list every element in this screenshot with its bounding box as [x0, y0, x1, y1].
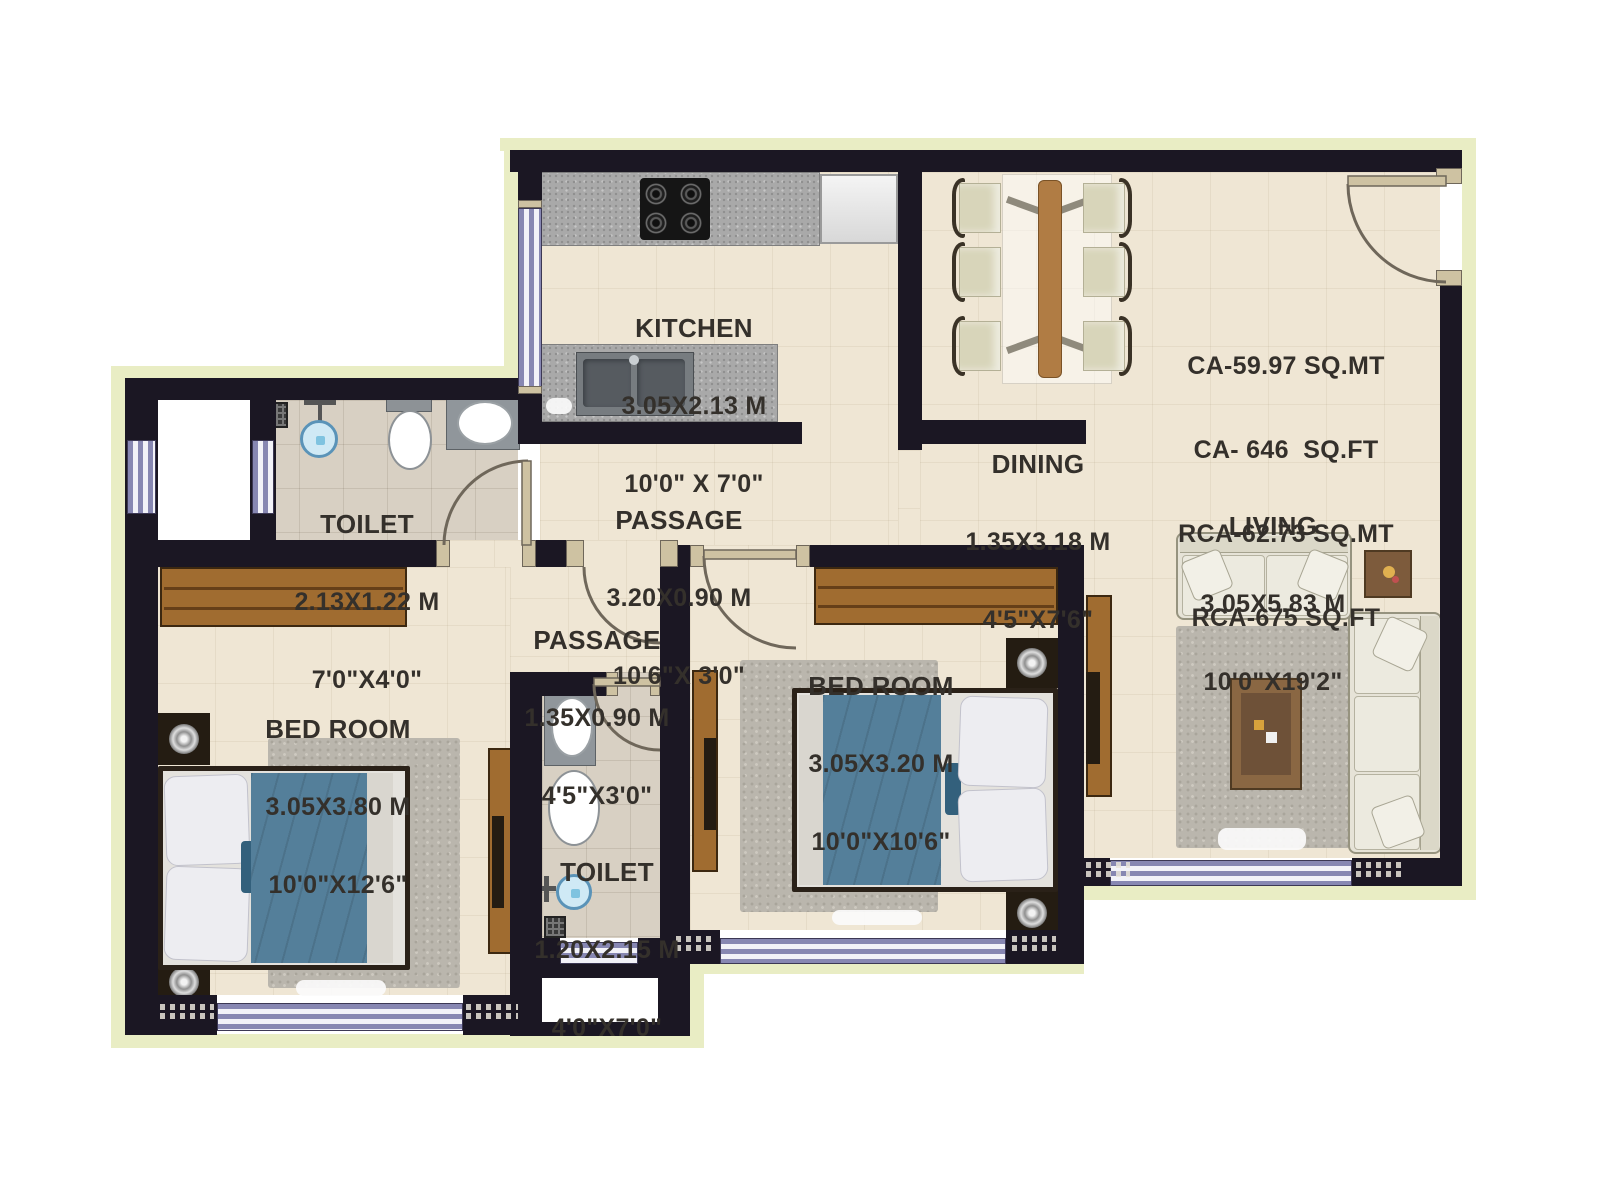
room-size-metric: 2.13X1.22 M	[294, 589, 439, 615]
wall-hatch	[1086, 871, 1130, 877]
room-size-imperial: 4'0"X7'0"	[534, 1015, 679, 1041]
plan-outline	[111, 366, 125, 1048]
room-name: LIVING	[1200, 513, 1345, 539]
door-jamb	[796, 545, 810, 567]
room-size-metric: 3.05X3.80 M	[265, 794, 410, 820]
dining-chair	[1080, 180, 1128, 236]
room-size-metric: 3.05X2.13 M	[621, 393, 766, 419]
wall	[125, 378, 518, 400]
dining-table-plank	[1038, 180, 1062, 378]
dining-chair	[956, 318, 1004, 374]
window	[720, 938, 1006, 964]
doormat	[296, 980, 386, 996]
door-jamb	[1436, 168, 1462, 184]
toilet-top-door-leaf	[522, 461, 531, 545]
dining-chair	[956, 180, 1004, 236]
room-size-metric: 1.35X0.90 M	[524, 705, 669, 731]
living-label: LIVING 3.05X5.83 M 10'0"X19'2"	[1200, 461, 1345, 747]
door-jamb	[566, 540, 584, 567]
wall-hatch	[1012, 945, 1056, 951]
shower-icon	[304, 400, 336, 405]
wall-hatch	[466, 1004, 518, 1010]
bedroom-left-label: BED ROOM 3.05X3.80 M 10'0"X12'6"	[265, 664, 410, 950]
carpet-area-sqmt: CA-59.97 SQ.MT	[1178, 352, 1394, 380]
floor-plan: KITCHEN 3.05X2.13 M 10'0" X 7'0" DINING …	[0, 0, 1600, 1200]
room-name: TOILET	[534, 859, 679, 885]
room-size-imperial: 10'0"X12'6"	[265, 872, 410, 898]
toilet-middle-label: TOILET 1.20X2.15 M 4'0"X7'0"	[534, 807, 679, 1093]
plan-outline	[504, 151, 518, 381]
room-size-metric: 3.05X3.20 M	[808, 751, 953, 777]
dining-chair	[956, 244, 1004, 300]
duct	[157, 400, 250, 540]
room-size-imperial: 10'0"X19'2"	[1200, 669, 1345, 695]
refrigerator	[820, 174, 898, 244]
window	[1110, 860, 1352, 886]
room-size-imperial: 4'5"X7'6"	[965, 607, 1110, 633]
door-jamb	[1436, 270, 1462, 286]
wall-hatch	[1356, 862, 1402, 868]
plan-outline	[1462, 138, 1476, 900]
window-cap	[518, 200, 542, 208]
dining-label: DINING 1.35X3.18 M 4'5"X7'6"	[965, 399, 1110, 685]
tv	[704, 738, 716, 830]
wall	[510, 150, 1462, 172]
room-size-imperial: 4'5"X3'0"	[524, 783, 669, 809]
wall	[1440, 286, 1462, 886]
passage-floor	[898, 450, 920, 545]
wall	[536, 540, 566, 567]
room-size-imperial: 10'0"X10'6"	[808, 829, 953, 855]
window-cap	[518, 386, 542, 394]
shower-drain	[300, 420, 338, 458]
wall-hatch	[160, 1013, 214, 1019]
room-name: DINING	[965, 451, 1110, 477]
room-size-metric: 1.35X3.18 M	[965, 529, 1110, 555]
carpet-area-sqft: CA- 646 SQ.FT	[1178, 436, 1394, 464]
room-name: PASSAGE	[606, 507, 751, 533]
wall	[898, 150, 922, 450]
window	[217, 1003, 463, 1031]
soap-tray	[546, 398, 572, 414]
washbasin-counter	[446, 392, 520, 450]
room-size-metric: 1.20X2.15 M	[534, 937, 679, 963]
bedroom-right-label: BED ROOM 3.05X3.20 M 10'0"X10'6"	[808, 621, 953, 907]
room-size-metric: 3.05X5.83 M	[1200, 591, 1345, 617]
room-name: BED ROOM	[808, 673, 953, 699]
dining-chair	[1080, 318, 1128, 374]
wall-hatch	[1086, 862, 1130, 868]
plan-outline	[1068, 886, 1476, 900]
wall-hatch	[676, 945, 716, 951]
plan-outline	[111, 1034, 535, 1048]
wall-hatch	[466, 1013, 518, 1019]
doormat	[832, 910, 922, 925]
plan-outline	[690, 964, 704, 1048]
room-name: TOILET	[294, 511, 439, 537]
hob	[640, 178, 710, 240]
window	[518, 208, 542, 388]
wall-hatch	[676, 936, 716, 942]
room-name: PASSAGE	[524, 627, 669, 653]
doorway-floor	[436, 540, 536, 567]
wall-hatch	[160, 1004, 214, 1010]
room-name: BED ROOM	[265, 716, 410, 742]
nightstand	[158, 713, 210, 765]
wall-hatch	[1012, 936, 1056, 942]
tv	[1086, 672, 1100, 764]
dining-chair	[1080, 244, 1128, 300]
wall-hatch	[1356, 871, 1402, 877]
window	[127, 440, 156, 514]
tv	[492, 816, 504, 908]
doormat	[1218, 828, 1306, 850]
room-name: KITCHEN	[621, 315, 766, 341]
window	[252, 440, 274, 514]
door-jamb	[522, 540, 536, 567]
